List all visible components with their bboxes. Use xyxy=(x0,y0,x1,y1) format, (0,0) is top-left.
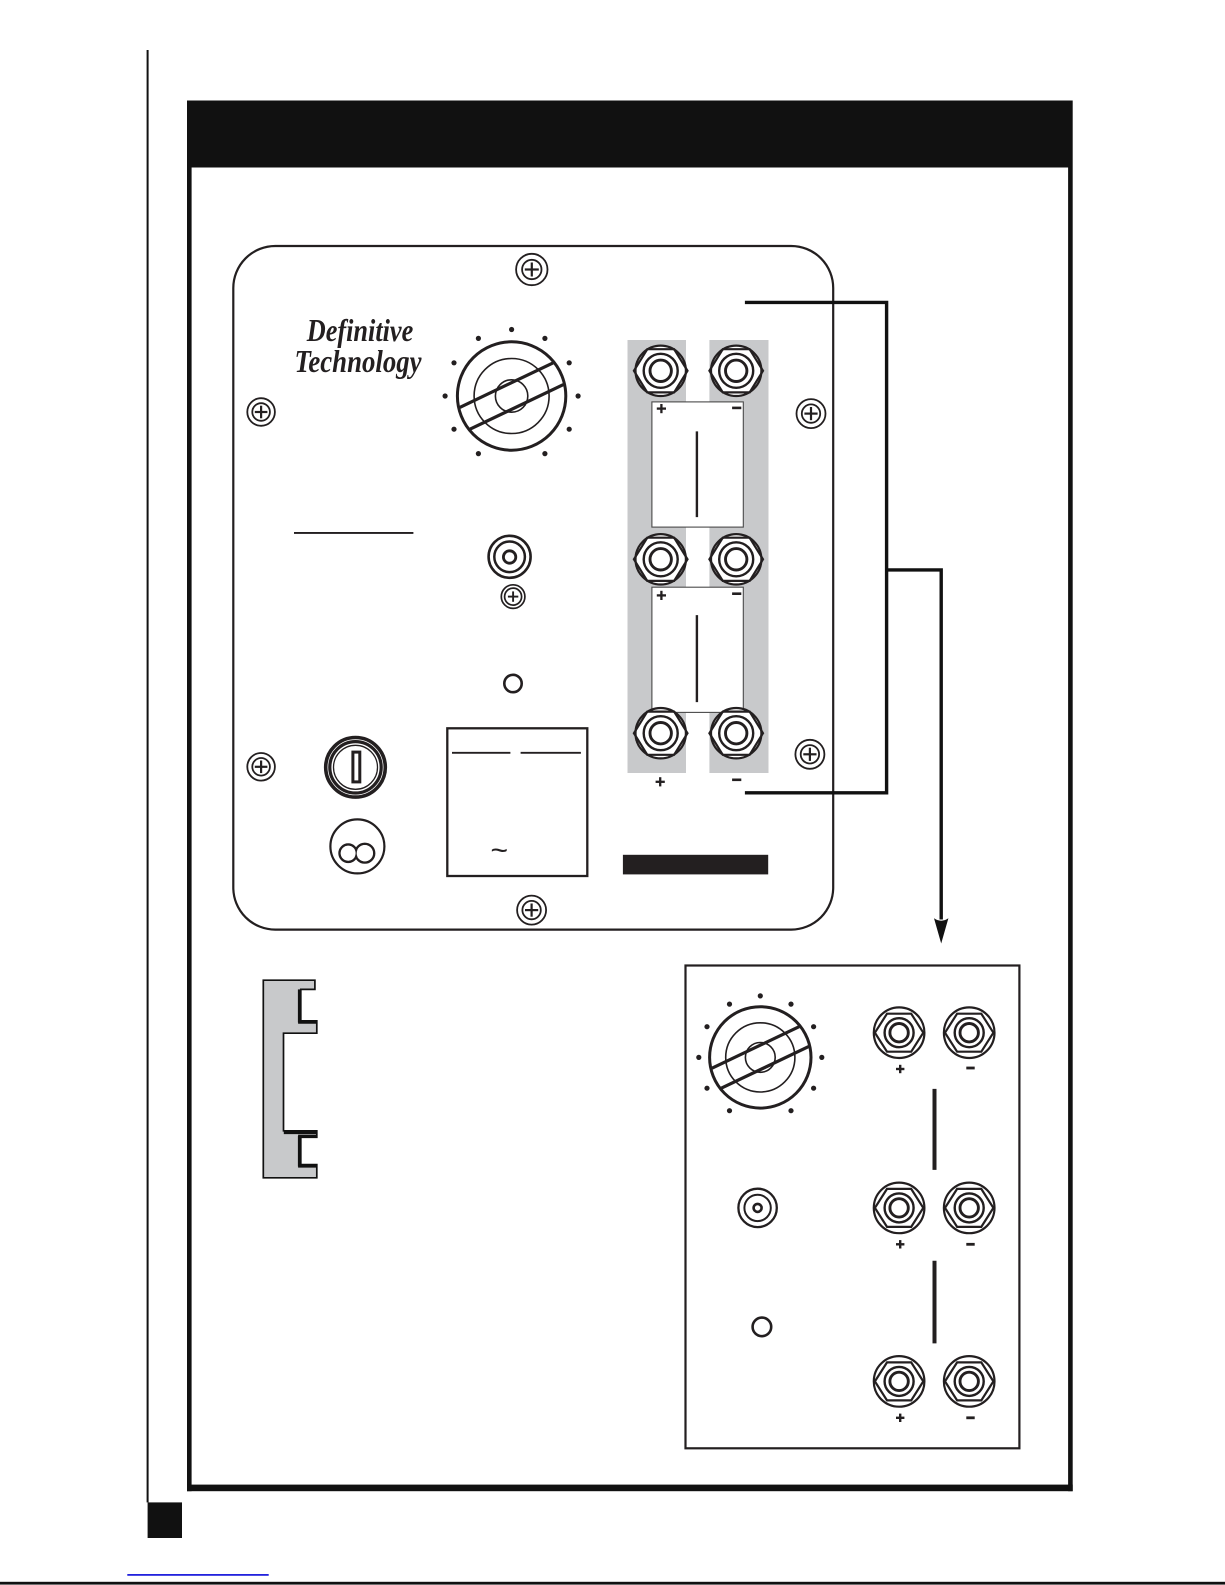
svg-text:Technology: Technology xyxy=(295,343,423,379)
svg-text:~: ~ xyxy=(491,834,509,867)
